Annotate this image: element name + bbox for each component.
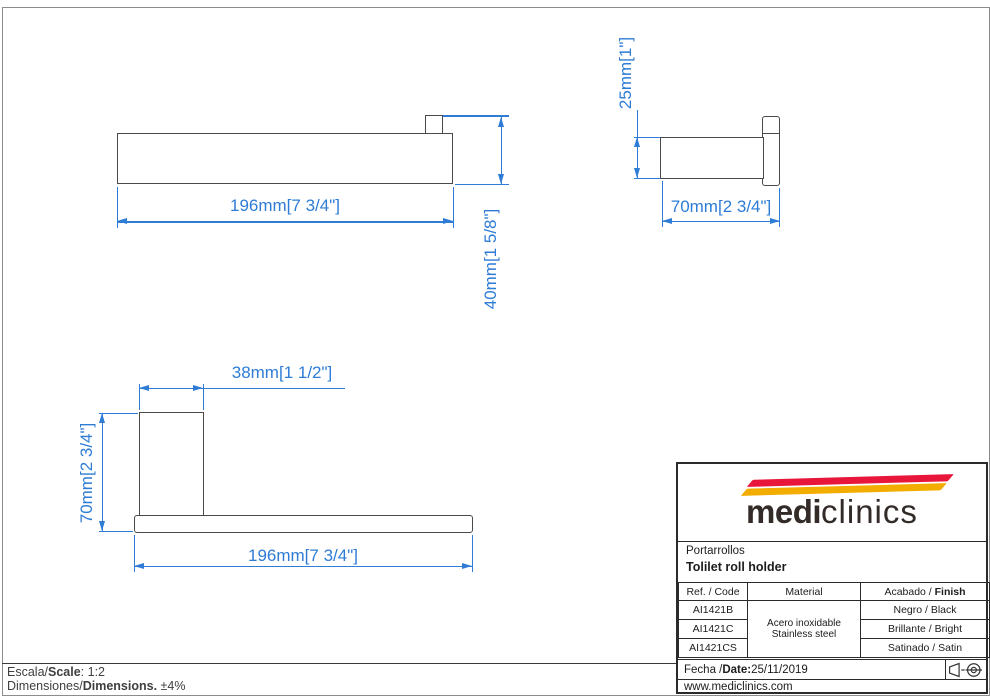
cell-finish-3: Satinado / Satin [861, 639, 990, 658]
spec-row: AI1421B Acero inoxidable Stainless steel… [679, 601, 990, 620]
dim-arrow-icon [134, 563, 144, 569]
dim-arrow-icon [634, 137, 640, 147]
side-height-label: 25mm[1"] [616, 23, 636, 123]
spec-table: Ref. / Code Material Acabado / Finish AI… [678, 582, 990, 658]
ref-code-value: AI1421B [693, 604, 733, 616]
scale-note: Escala/Scale: 1:2 [7, 665, 105, 679]
finish-value: Brillante / Bright [888, 623, 962, 635]
front-length-label: 196mm[7 3/4"] [160, 196, 410, 216]
product-name-es: Portarrollos [686, 545, 745, 557]
side-view-plate-edge [762, 133, 780, 135]
header-material: Material [748, 583, 861, 601]
top-view-post [139, 412, 204, 517]
side-depth-dim-line [662, 221, 780, 223]
dim-arrow-icon [99, 413, 105, 423]
cell-material: Acero inoxidable Stainless steel [748, 601, 861, 658]
ref-code-value: AI1421C [693, 623, 734, 635]
front-length-dim-line [117, 221, 453, 223]
side-view-arm [660, 137, 764, 179]
header-ref-code: Ref. / Code [679, 583, 748, 601]
top-width-label: 38mm[1 1/2"] [207, 363, 357, 383]
cell-code-3: AI1421CS [679, 639, 748, 658]
header-material-label: Material [785, 586, 822, 598]
dim-arrow-icon [117, 218, 127, 224]
top-depth-dim-line [102, 413, 104, 531]
dim-arrow-icon [193, 385, 203, 391]
header-finish-label-es: Acabado / [884, 586, 934, 598]
website-row: www.mediclinics.com [678, 680, 986, 694]
title-block: mediclinics Portarrollos Tolilet roll ho… [676, 462, 988, 694]
top-depth-label: 70mm[2 3/4"] [77, 408, 97, 538]
cell-code-1: AI1421B [679, 601, 748, 620]
header-ref-code-label: Ref. / Code [686, 586, 739, 598]
tolerance-note: Dimensiones/Dimensions. ±4% [7, 679, 185, 693]
header-finish-label-en: Finish [935, 586, 966, 598]
logo-wordmark: mediclinics [746, 493, 918, 531]
front-view-body [117, 133, 453, 184]
dim-arrow-icon [498, 117, 504, 127]
first-angle-projection-icon [947, 661, 985, 679]
title-block-divider [678, 541, 986, 542]
drawing-sheet: 196mm[7 3/4"] 40mm[1 5/8"] 25mm[1"] 70mm… [0, 0, 990, 700]
scale-label-en: Scale [48, 665, 81, 679]
dimensions-label: Dimensiones/ [7, 679, 83, 693]
dim-arrow-icon [443, 218, 453, 224]
website-url: www.mediclinics.com [684, 681, 793, 693]
side-view-wall-plate [762, 116, 780, 186]
dim-arrow-icon [498, 174, 504, 184]
cell-code-2: AI1421C [679, 620, 748, 639]
mediclinics-logo: mediclinics [678, 464, 986, 541]
logo-word-medi: medi [746, 493, 821, 530]
front-height-label: 40mm[1 5/8"] [481, 199, 501, 319]
side-depth-label: 70mm[2 3/4"] [646, 197, 796, 217]
material-line-en: Stainless steel [748, 629, 860, 641]
header-finish: Acabado / Finish [861, 583, 990, 601]
dim-arrow-icon [770, 218, 780, 224]
top-depth-extension-top [99, 413, 138, 415]
date-label-es: Fecha / [684, 664, 722, 676]
top-width-dim-line [139, 388, 345, 390]
spec-header-row: Ref. / Code Material Acabado / Finish [679, 583, 990, 601]
logo-word-clinics: clinics [821, 493, 918, 530]
scale-value: : 1:2 [81, 665, 105, 679]
front-view-mount-tab [425, 115, 443, 135]
material-line-es: Acero inoxidable [748, 618, 860, 630]
cell-finish-1: Negro / Black [861, 601, 990, 620]
ref-code-value: AI1421CS [689, 642, 737, 654]
dim-arrow-icon [99, 521, 105, 531]
finish-value: Negro / Black [893, 604, 956, 616]
finish-value: Satinado / Satin [888, 642, 962, 654]
top-view-bar [134, 515, 473, 533]
product-name-en: Tolilet roll holder [686, 560, 786, 574]
cell-finish-2: Brillante / Bright [861, 620, 990, 639]
dim-arrow-icon [462, 563, 472, 569]
date-row: Fecha / Date: 25/11/2019 [678, 659, 986, 680]
dim-arrow-icon [634, 168, 640, 178]
top-length-label: 196mm[7 3/4"] [178, 546, 428, 566]
footer-divider [2, 663, 678, 665]
dim-arrow-icon [662, 218, 672, 224]
scale-label: Escala/ [7, 665, 48, 679]
date-label-en: Date: [722, 664, 751, 676]
dim-arrow-icon [139, 385, 149, 391]
date-value: 25/11/2019 [751, 664, 808, 676]
dimensions-label-en: Dimensions. [83, 679, 157, 693]
tolerance-value: ±4% [157, 679, 185, 693]
